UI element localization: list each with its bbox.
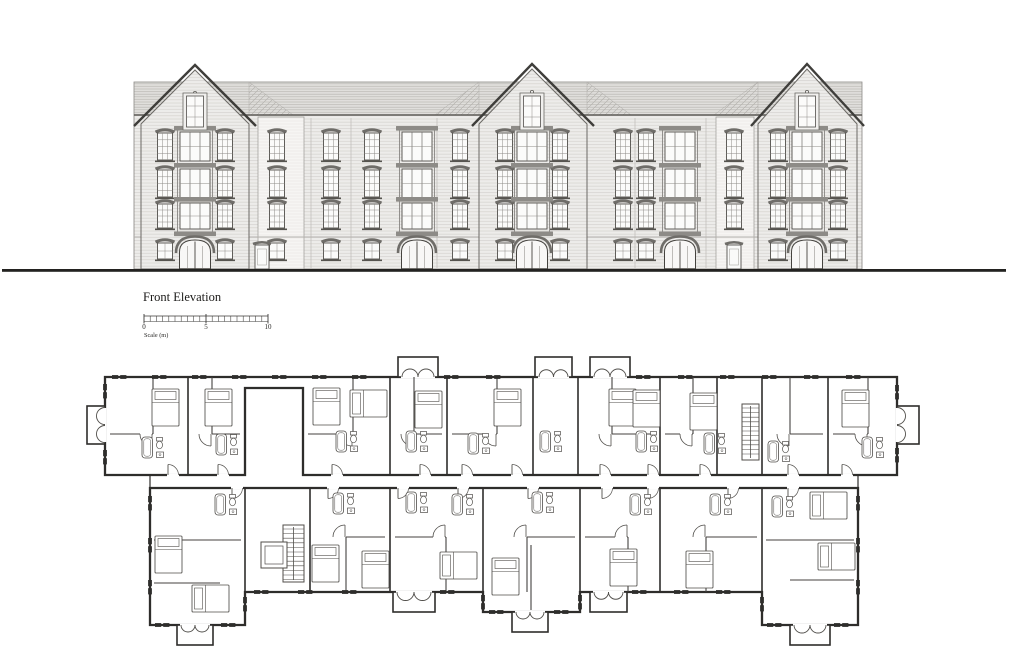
bed-symbol: [440, 552, 477, 579]
sash-window: [636, 167, 656, 199]
link-entrance-door: [253, 242, 272, 269]
link-oriel-stack: [659, 126, 701, 269]
bathroom-fixtures: [768, 441, 790, 462]
bed-symbol: [609, 389, 636, 426]
lower-apartment-band-walls: [150, 488, 858, 625]
sash-window: [495, 130, 515, 162]
sash-window: [613, 167, 633, 199]
sash-window: [267, 201, 287, 230]
bed-symbol: [810, 492, 847, 519]
sash-window: [724, 167, 744, 199]
link-oriel-stack: [396, 126, 438, 269]
ground-floor-window: [215, 240, 235, 261]
scale-tick-label-0: 0: [142, 323, 146, 331]
bed-symbol: [610, 549, 637, 586]
entrance-porch: [535, 357, 572, 377]
sash-window: [550, 167, 570, 199]
bathroom-fixtures: [710, 494, 732, 515]
sash-window: [550, 130, 570, 162]
bed-symbol: [686, 551, 713, 588]
bathroom-fixtures: [216, 434, 238, 455]
sash-window: [267, 130, 287, 162]
bed-symbol: [690, 393, 717, 430]
end-bay-window: [87, 406, 105, 444]
ground-floor-window: [636, 240, 656, 261]
lift-shaft: [261, 542, 287, 568]
sash-window: [828, 130, 848, 162]
drawing-sheet: Front Elevation 0 5 10 Scale (m): [0, 0, 1024, 655]
sash-window: [828, 167, 848, 199]
ground-line: [2, 269, 1006, 272]
sash-window: [450, 201, 470, 230]
entrance-porch: [590, 592, 627, 612]
sash-window: [636, 201, 656, 230]
sash-window: [828, 201, 848, 230]
sash-window: [362, 130, 382, 162]
bathroom-fixtures: [452, 494, 474, 515]
link-entrance-door: [725, 242, 744, 269]
sash-window: [321, 201, 341, 230]
ground-floor-window: [828, 240, 848, 261]
bathroom-fixtures: [636, 431, 658, 452]
sash-window: [768, 167, 788, 199]
sash-window: [155, 167, 175, 199]
bathroom-fixtures: [406, 492, 428, 513]
bed-symbol: [205, 389, 232, 426]
bed-symbol: [492, 558, 519, 595]
sash-window: [215, 201, 235, 230]
bed-symbol: [818, 543, 855, 570]
sash-window: [450, 130, 470, 162]
sash-window: [550, 201, 570, 230]
sash-window: [362, 167, 382, 199]
bathroom-fixtures: [468, 433, 490, 454]
bed-symbol: [313, 388, 340, 425]
bathroom-fixtures: [704, 433, 726, 454]
bathroom-fixtures: [540, 431, 562, 452]
sash-window: [636, 130, 656, 162]
bay-window: [512, 612, 548, 632]
ground-floor-window: [321, 240, 341, 261]
ground-floor-window: [613, 240, 633, 261]
entrance-porch: [590, 357, 630, 377]
bed-symbol: [362, 551, 389, 588]
bed-symbol: [152, 389, 179, 426]
scale-tick-label-5: 5: [204, 323, 208, 331]
bed-symbol: [312, 545, 339, 582]
bed-symbol: [350, 390, 387, 417]
sash-window: [155, 201, 175, 230]
bed-symbol: [155, 536, 182, 573]
bathroom-fixtures: [630, 494, 652, 515]
bathroom-fixtures: [772, 496, 794, 517]
ground-floor-window: [362, 240, 382, 261]
bathroom-fixtures: [862, 437, 884, 458]
sash-window: [362, 201, 382, 230]
sash-window: [155, 130, 175, 162]
front-elevation-drawing: [2, 64, 1006, 272]
bed-symbol: [633, 390, 660, 427]
sash-window: [450, 167, 470, 199]
bathroom-fixtures: [336, 431, 358, 452]
drawing-title: Front Elevation: [143, 290, 222, 304]
sash-window: [613, 201, 633, 230]
ground-floor-window: [450, 240, 470, 261]
sash-window: [495, 201, 515, 230]
sash-window: [495, 167, 515, 199]
scale-tick-label-10: 10: [265, 323, 273, 331]
bed-symbol: [494, 389, 521, 426]
bathroom-fixtures: [406, 431, 428, 452]
ground-floor-window: [550, 240, 570, 261]
scale-caption: Scale (m): [144, 332, 168, 339]
sash-window: [768, 201, 788, 230]
bed-symbol: [192, 585, 229, 612]
sash-window: [724, 201, 744, 230]
bed-symbol: [842, 390, 869, 427]
ground-floor-window: [768, 240, 788, 261]
sash-window: [768, 130, 788, 162]
sash-window: [321, 130, 341, 162]
architectural-drawing: Front Elevation 0 5 10 Scale (m): [0, 0, 1024, 655]
staircase: [742, 404, 759, 460]
bed-symbol: [415, 391, 442, 428]
bay-window: [790, 625, 830, 645]
bathroom-fixtures: [142, 437, 164, 458]
sash-window: [613, 130, 633, 162]
sash-window: [215, 167, 235, 199]
entrance-porch: [398, 357, 438, 377]
floor-plan-drawing: [87, 357, 919, 645]
sash-window: [267, 167, 287, 199]
bathroom-fixtures: [532, 492, 554, 513]
ground-floor-window: [155, 240, 175, 261]
entrance-porch: [393, 592, 435, 612]
end-bay-window: [897, 406, 919, 444]
bathroom-fixtures: [215, 494, 237, 515]
sash-window: [724, 130, 744, 162]
sash-window: [321, 167, 341, 199]
sash-window: [215, 130, 235, 162]
bathroom-fixtures: [333, 493, 355, 514]
bay-window: [177, 625, 213, 645]
